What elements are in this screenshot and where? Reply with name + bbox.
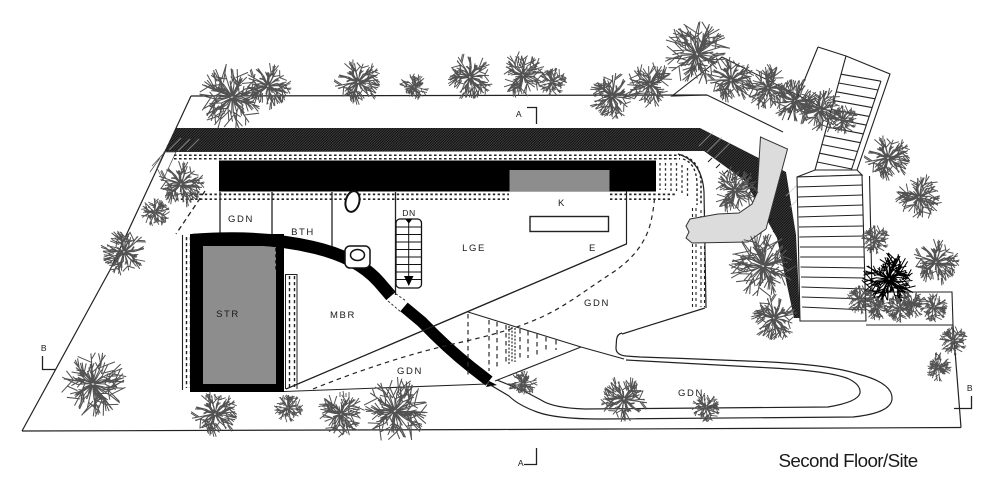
svg-text:DN: DN [402,208,415,218]
svg-text:BTH: BTH [291,227,315,238]
svg-text:STR: STR [216,309,240,320]
svg-text:GDN: GDN [397,366,423,377]
svg-text:GDN: GDN [678,388,704,399]
svg-text:B: B [967,383,973,393]
svg-text:GDN: GDN [228,214,254,225]
svg-text:A: A [516,109,522,119]
svg-text:Second Floor/Site: Second Floor/Site [778,450,917,471]
svg-text:LGE: LGE [462,243,486,254]
svg-text:K: K [558,198,566,209]
svg-text:MBR: MBR [330,310,356,321]
svg-text:B: B [41,343,47,353]
svg-text:GDN: GDN [584,298,610,309]
svg-text:A: A [518,458,524,468]
svg-text:E: E [589,243,597,254]
